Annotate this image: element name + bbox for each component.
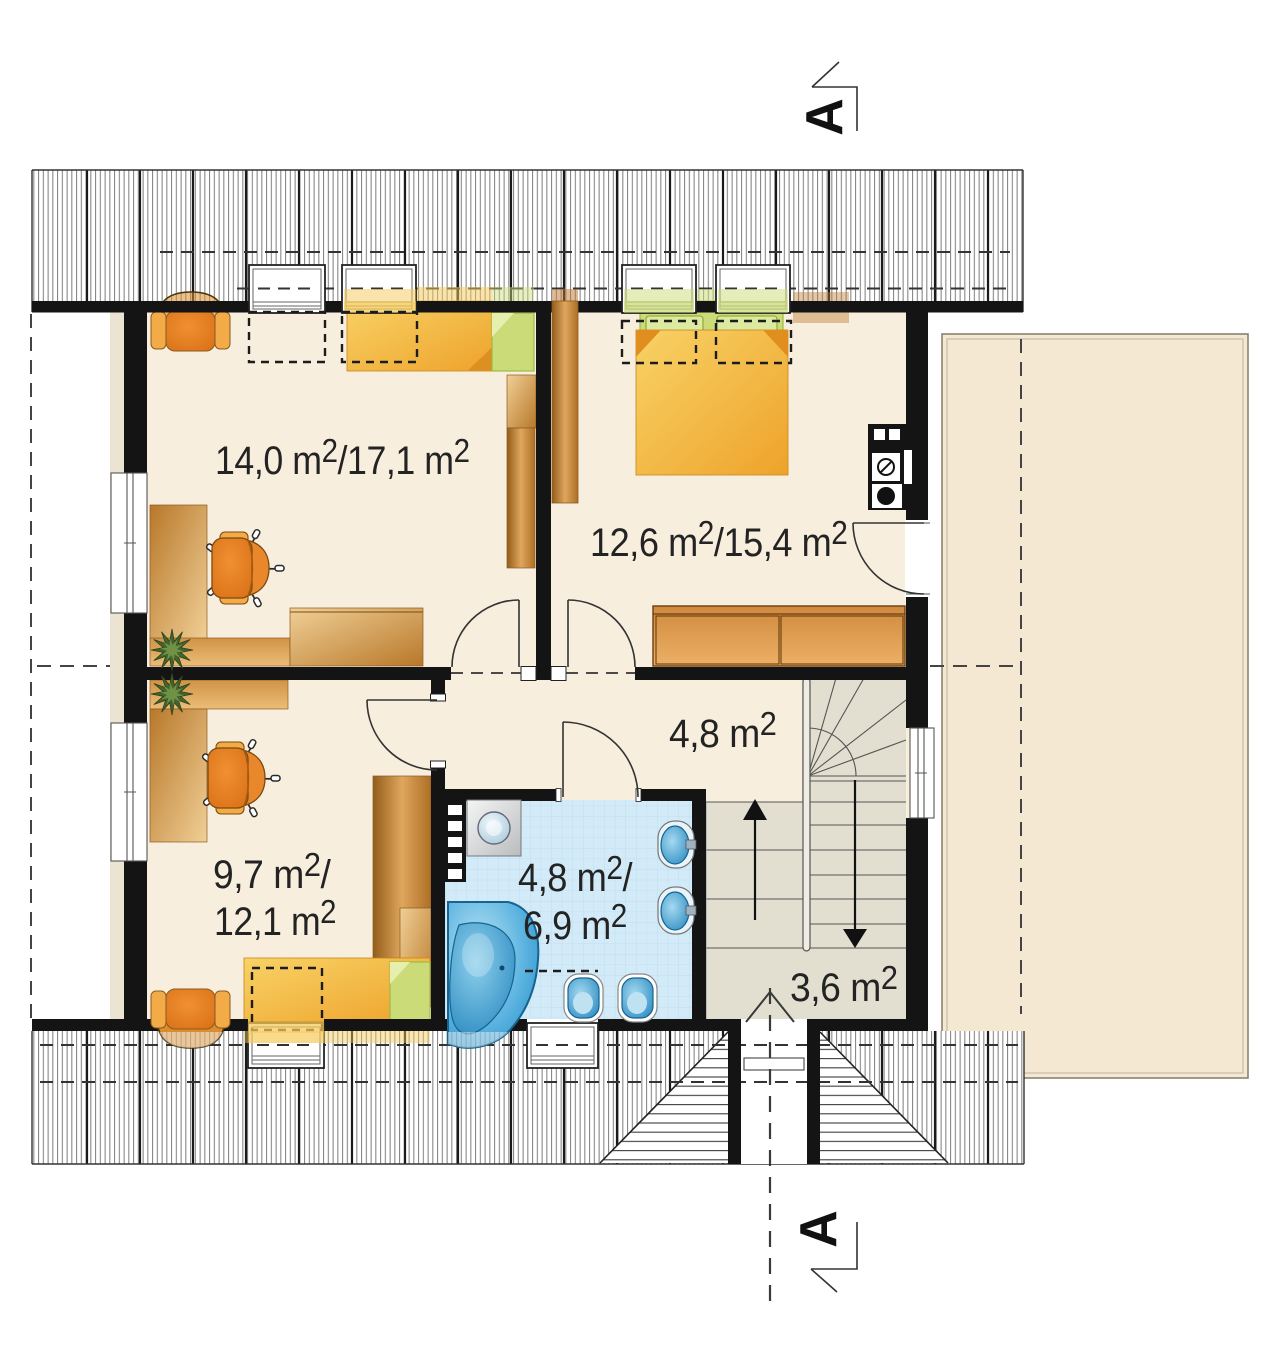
svg-text:12,6 m2/15,4 m2: 12,6 m2/15,4 m2 (590, 515, 847, 566)
svg-text:A: A (790, 1210, 848, 1248)
svg-text:14,0 m2/17,1 m2: 14,0 m2/17,1 m2 (215, 432, 470, 483)
svg-text:A: A (796, 98, 854, 136)
svg-text:12,1 m2: 12,1 m2 (214, 893, 336, 944)
